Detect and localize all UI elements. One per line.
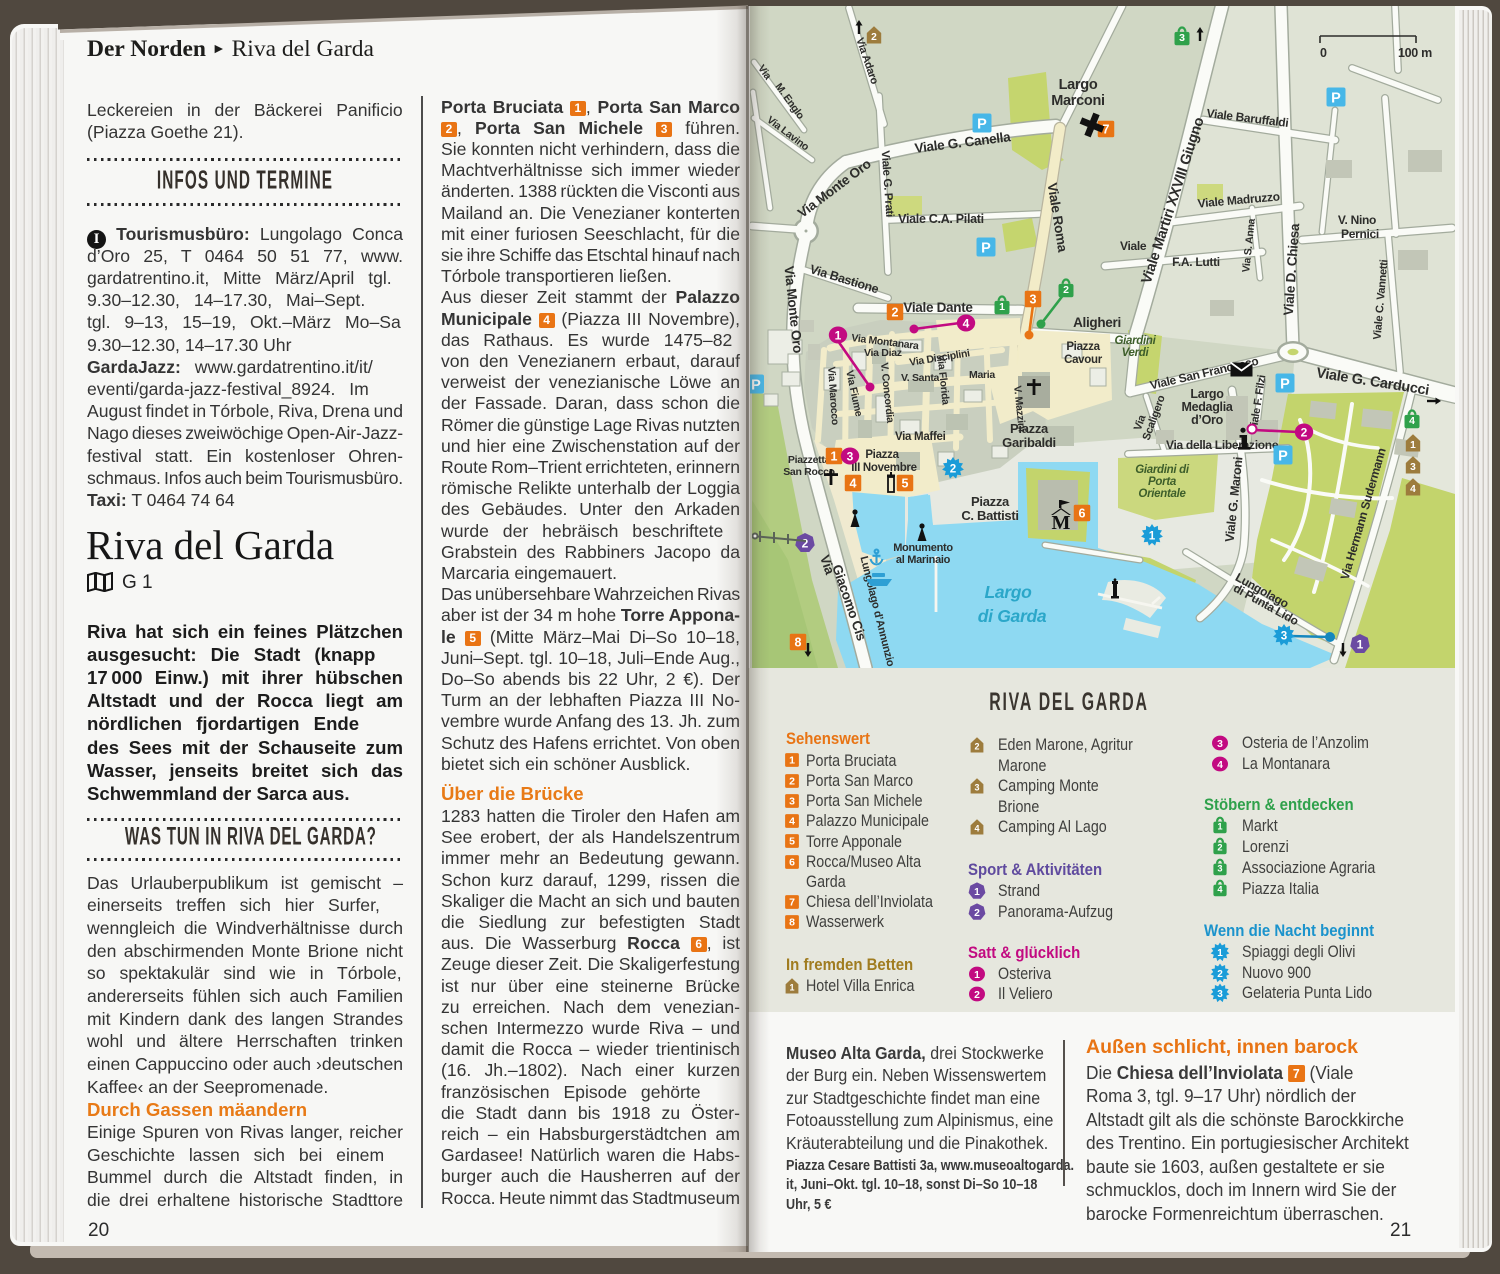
svg-text:3: 3 [1179,32,1185,44]
svg-text:2: 2 [950,463,956,476]
svg-text:4: 4 [963,317,970,331]
svg-text:1: 1 [1217,822,1222,832]
svg-text:3: 3 [974,783,979,793]
svg-text:Piazza: Piazza [865,449,899,461]
svg-text:Giardini di: Giardini di [1135,464,1190,476]
svg-text:Garibaldi: Garibaldi [1002,435,1056,450]
svg-text:1: 1 [835,329,842,343]
svg-text:V. Santa: V. Santa [901,372,940,384]
svg-text:3: 3 [1410,462,1416,473]
svg-text:1: 1 [999,301,1005,313]
svg-text:5: 5 [902,476,909,490]
svg-text:P: P [1278,449,1288,465]
svg-text:1: 1 [789,983,794,993]
svg-text:Viale: Viale [1120,239,1147,253]
svg-text:Porta: Porta [1148,476,1177,488]
svg-text:4: 4 [1217,760,1223,771]
svg-text:3: 3 [789,796,795,808]
svg-text:2: 2 [974,908,980,919]
svg-text:d’Oro: d’Oro [1191,413,1223,427]
svg-text:3: 3 [1030,292,1037,306]
svg-text:4: 4 [1217,885,1223,895]
svg-text:3: 3 [847,450,854,464]
svg-text:2: 2 [1217,843,1222,853]
svg-text:Viale C.A. Pilati: Viale C.A. Pilati [898,212,984,226]
svg-text:4: 4 [789,816,795,828]
svg-text:Pernici: Pernici [1341,227,1379,241]
svg-text:1: 1 [1410,440,1416,451]
svg-text:1: 1 [974,887,980,898]
svg-text:Piazza: Piazza [1010,421,1049,436]
svg-text:P: P [981,241,991,257]
svg-text:2: 2 [1217,969,1223,980]
svg-text:di Garda: di Garda [978,606,1047,626]
svg-text:2: 2 [1301,426,1308,440]
svg-text:F.A. Lutti: F.A. Lutti [1172,255,1220,269]
svg-text:Via della Liberazione: Via della Liberazione [1166,438,1279,452]
svg-text:Largo: Largo [1190,387,1224,401]
svg-text:3: 3 [1217,864,1222,874]
svg-text:Marconi: Marconi [1051,93,1105,109]
svg-text:Largo: Largo [1059,77,1098,93]
svg-text:2: 2 [974,990,980,1001]
svg-text:5: 5 [789,836,795,848]
svg-text:Maria: Maria [969,369,995,381]
svg-text:P: P [1331,91,1341,107]
svg-text:1: 1 [1217,948,1223,959]
svg-text:1: 1 [974,970,980,981]
svg-text:7: 7 [789,897,795,909]
svg-text:1: 1 [1357,638,1364,652]
svg-text:P: P [1280,377,1290,393]
svg-text:Piazza: Piazza [971,494,1010,509]
svg-text:Via Maffei: Via Maffei [895,431,946,443]
svg-text:3: 3 [1217,739,1223,750]
svg-text:Largo: Largo [984,582,1032,602]
svg-text:Piazza: Piazza [1066,341,1100,353]
svg-text:C. Battisti: C. Battisti [961,508,1018,523]
svg-text:Verdi: Verdi [1122,347,1150,359]
svg-text:2: 2 [871,32,877,43]
svg-text:Giardini: Giardini [1114,335,1156,347]
svg-text:al Marinaio: al Marinaio [896,554,951,566]
svg-text:M: M [1052,512,1071,532]
svg-text:4: 4 [974,824,979,834]
svg-text:4: 4 [850,476,857,490]
svg-text:6: 6 [789,857,795,869]
svg-text:2: 2 [1063,284,1069,296]
svg-text:4: 4 [1409,415,1415,427]
svg-text:2: 2 [974,742,979,752]
svg-text:Cavour: Cavour [1064,354,1103,366]
svg-text:2: 2 [892,305,899,319]
svg-text:6: 6 [1079,506,1086,520]
svg-text:Orientale: Orientale [1138,488,1186,500]
svg-text:V. Nino: V. Nino [1338,213,1376,227]
svg-text:8: 8 [789,917,795,929]
svg-text:Medaglia: Medaglia [1181,400,1233,414]
svg-text:1: 1 [789,755,795,767]
svg-text:100 m: 100 m [1398,46,1432,60]
svg-text:1: 1 [1149,530,1156,543]
svg-text:4: 4 [1410,484,1416,495]
svg-text:3: 3 [1281,630,1288,643]
svg-text:3: 3 [1217,989,1223,1000]
svg-text:Aligheri: Aligheri [1073,315,1121,330]
svg-text:P: P [977,117,987,133]
svg-text:0: 0 [1320,46,1327,60]
svg-text:2: 2 [789,776,795,788]
